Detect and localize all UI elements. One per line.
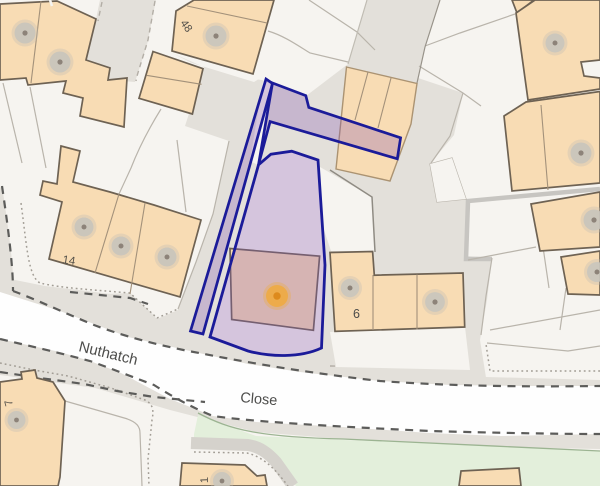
svg-text:6: 6: [353, 307, 360, 321]
svg-text:Close: Close: [240, 390, 278, 409]
svg-text:1: 1: [199, 477, 211, 484]
svg-text:14: 14: [62, 254, 77, 268]
